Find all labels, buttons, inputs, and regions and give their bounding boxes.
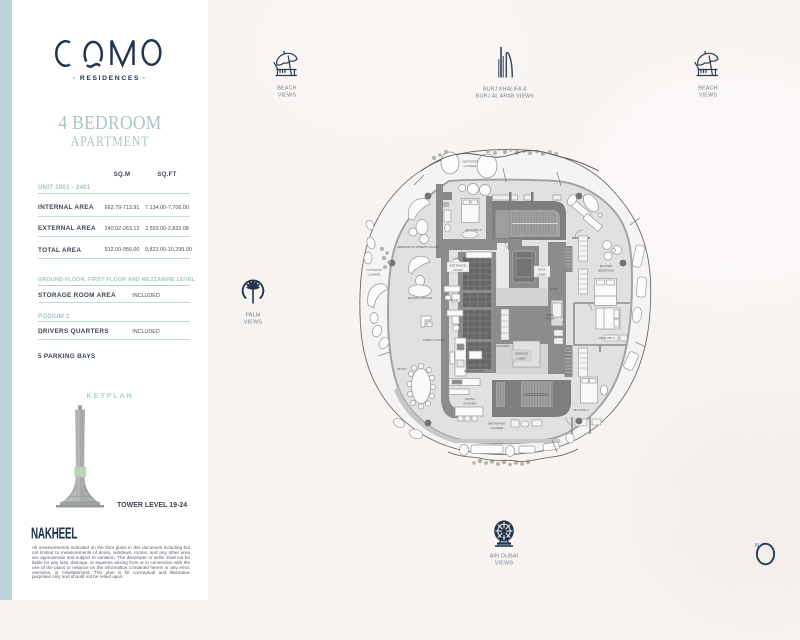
svg-text:ENTRANCE: ENTRANCE <box>450 264 467 268</box>
svg-text:SERVICE: SERVICE <box>515 352 528 356</box>
svg-text:BEACH: BEACH <box>277 86 297 92</box>
svg-text:FAMILY LOUNGE: FAMILY LOUNGE <box>423 338 445 342</box>
svg-text:LAUNDRY: LAUNDRY <box>496 344 510 348</box>
svg-text:LOBBY: LOBBY <box>516 357 526 361</box>
svg-text:BURJ AL ARAB VIEWS: BURJ AL ARAB VIEWS <box>476 94 534 100</box>
svg-text:OBSERVATION MOMENT LOUNGE: OBSERVATION MOMENT LOUNGE <box>397 245 439 249</box>
svg-text:LOBBY: LOBBY <box>537 273 547 277</box>
svg-text:AIN DUBAI: AIN DUBAI <box>490 554 519 560</box>
svg-text:LOUNGE: LOUNGE <box>368 273 381 277</box>
svg-text:ROOM: ROOM <box>546 317 555 321</box>
svg-text:2B SUITE 2: 2B SUITE 2 <box>599 336 615 340</box>
svg-text:PALM: PALM <box>245 313 260 319</box>
svg-text:VIEWS: VIEWS <box>278 93 297 99</box>
svg-text:LOUNGE: LOUNGE <box>464 164 477 168</box>
svg-text:N: N <box>755 543 759 549</box>
svg-text:2B SUITE 3: 2B SUITE 3 <box>465 228 481 232</box>
svg-text:DOOR: DOOR <box>454 268 464 272</box>
svg-text:BEACH: BEACH <box>698 86 718 92</box>
svg-text:LOUNGE: LOUNGE <box>491 426 504 430</box>
svg-text:BACK KITCHEN: BACK KITCHEN <box>464 369 484 373</box>
svg-text:OUTDOOR: OUTDOOR <box>366 268 382 272</box>
svg-text:BREAKFAST: BREAKFAST <box>488 422 506 426</box>
svg-text:POOL: POOL <box>538 268 547 272</box>
svg-text:STUDY: STUDY <box>397 367 407 371</box>
svg-text:VIEWS: VIEWS <box>699 93 718 99</box>
svg-text:STOR: STOR <box>550 287 558 291</box>
svg-text:VIEWS: VIEWS <box>244 320 263 326</box>
svg-text:VIEWS: VIEWS <box>495 561 514 567</box>
svg-text:BURJ KHALIFA &: BURJ KHALIFA & <box>483 87 527 93</box>
svg-text:FRONT: FRONT <box>465 397 475 401</box>
svg-text:BUTLER: BUTLER <box>446 298 459 302</box>
svg-text:EVENING LOUNGE: EVENING LOUNGE <box>408 296 432 300</box>
svg-text:2B SUITE 1: 2B SUITE 1 <box>573 408 589 412</box>
svg-text:MASTER: MASTER <box>600 264 613 268</box>
svg-text:OUTDOOR: OUTDOOR <box>462 160 478 164</box>
svg-text:BEDROOM: BEDROOM <box>598 269 614 273</box>
svg-text:KITCHEN: KITCHEN <box>463 402 476 406</box>
